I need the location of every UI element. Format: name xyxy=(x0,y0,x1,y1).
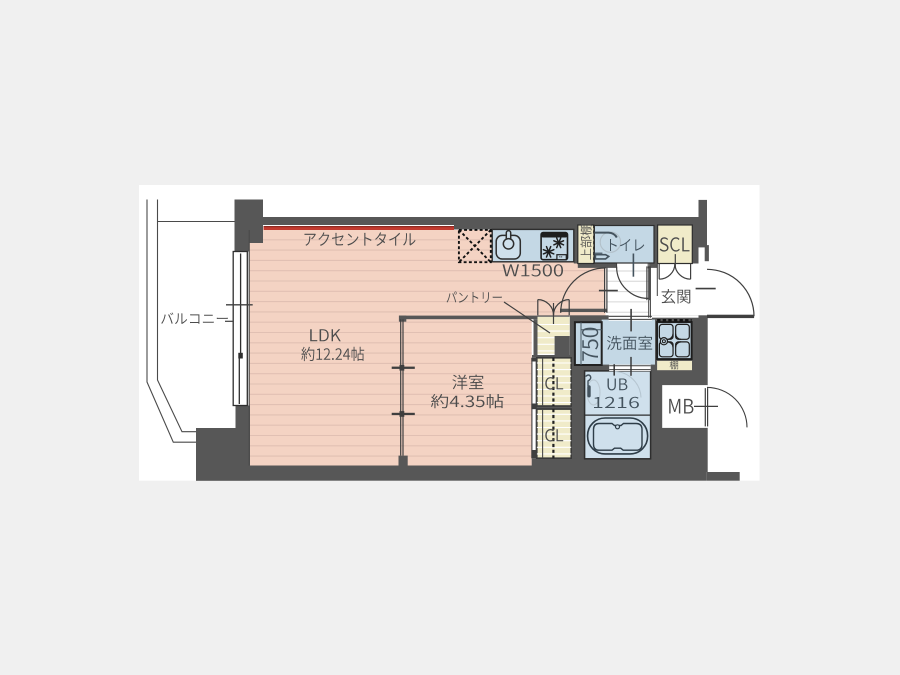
svg-text:**: ** xyxy=(559,255,563,260)
